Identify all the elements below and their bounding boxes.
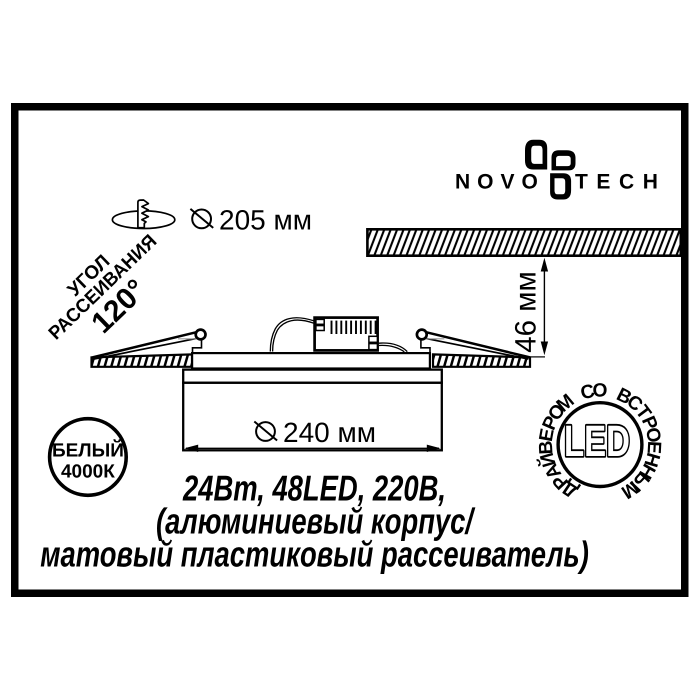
- svg-text:TECH: TECH: [575, 170, 667, 193]
- svg-text:NOV: NOV: [455, 170, 522, 193]
- svg-text:О: О: [593, 381, 608, 402]
- svg-text:240 мм: 240 мм: [283, 417, 376, 448]
- svg-text:46 мм: 46 мм: [510, 271, 543, 353]
- svg-text:матовый пластиковый рассеивате: матовый пластиковый рассеиватель): [40, 534, 589, 575]
- svg-text:БЕЛЫЙ: БЕЛЫЙ: [52, 439, 124, 462]
- svg-text:LED: LED: [564, 417, 630, 466]
- svg-text:205 мм: 205 мм: [219, 204, 312, 235]
- svg-text:4000К: 4000К: [61, 461, 115, 482]
- svg-text:O: O: [522, 170, 538, 193]
